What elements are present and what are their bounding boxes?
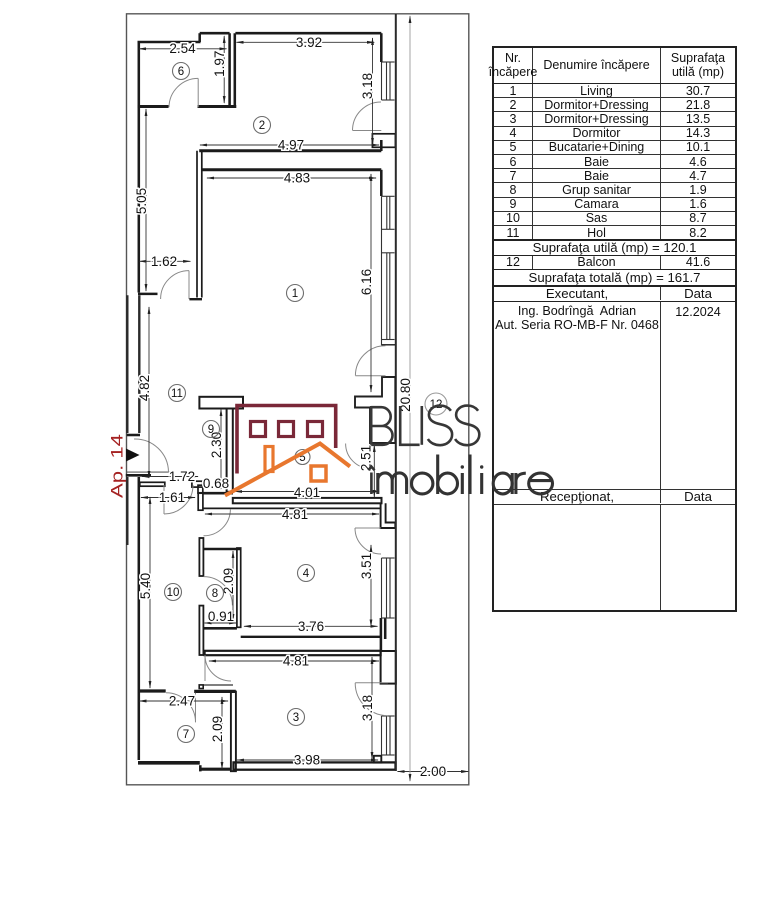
svg-text:3.18: 3.18 <box>360 73 375 99</box>
svg-text:5.40: 5.40 <box>138 573 153 599</box>
svg-text:4.97: 4.97 <box>278 138 304 153</box>
svg-text:1.97: 1.97 <box>212 51 227 77</box>
svg-text:2: 2 <box>259 120 265 132</box>
svg-text:2.54: 2.54 <box>169 41 196 56</box>
svg-text:7: 7 <box>183 729 189 741</box>
svg-text:0.91: 0.91 <box>208 609 234 624</box>
svg-text:2.09: 2.09 <box>210 716 225 742</box>
svg-text:2.47: 2.47 <box>169 693 195 708</box>
svg-text:4: 4 <box>303 568 310 580</box>
svg-text:6.16: 6.16 <box>359 269 374 295</box>
svg-text:3.18: 3.18 <box>360 695 375 721</box>
svg-text:3.98: 3.98 <box>294 752 320 767</box>
svg-text:3.51: 3.51 <box>359 553 374 579</box>
svg-text:6: 6 <box>178 66 184 78</box>
svg-text:10: 10 <box>167 587 180 599</box>
svg-text:9: 9 <box>208 424 214 436</box>
svg-text:5.05: 5.05 <box>134 188 149 214</box>
svg-text:1.72: 1.72 <box>169 469 195 484</box>
svg-text:3.92: 3.92 <box>296 35 322 50</box>
svg-text:11: 11 <box>171 388 183 400</box>
svg-text:0.68: 0.68 <box>203 476 229 491</box>
svg-text:1: 1 <box>292 288 298 300</box>
svg-text:3: 3 <box>293 712 299 724</box>
svg-text:Ap. 14: Ap. 14 <box>109 434 127 498</box>
svg-text:1.62: 1.62 <box>151 254 177 269</box>
svg-text:4.01: 4.01 <box>294 485 320 500</box>
svg-text:4.82: 4.82 <box>137 375 152 401</box>
svg-text:1.61: 1.61 <box>159 490 185 505</box>
svg-text:4.81: 4.81 <box>282 507 308 522</box>
svg-text:2.00: 2.00 <box>420 764 446 779</box>
svg-text:8: 8 <box>212 588 218 600</box>
svg-text:4.83: 4.83 <box>284 171 310 186</box>
svg-text:3.76: 3.76 <box>298 619 324 634</box>
svg-text:4.81: 4.81 <box>283 654 309 669</box>
